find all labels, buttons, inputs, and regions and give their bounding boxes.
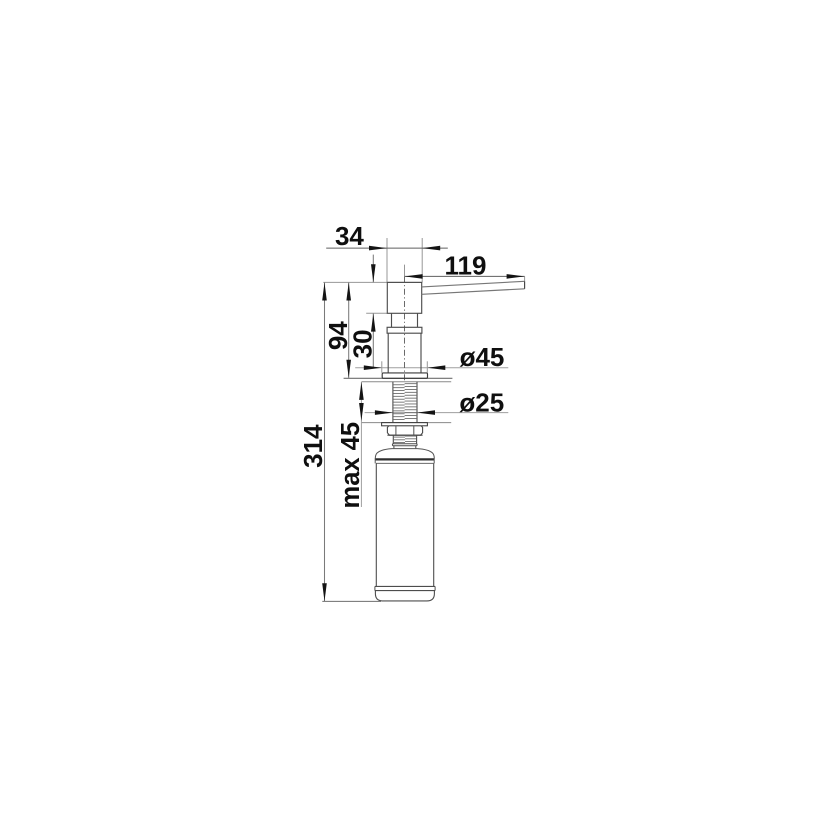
svg-text:30: 30 <box>347 329 377 358</box>
svg-text:max 45: max 45 <box>337 422 365 509</box>
svg-text:314: 314 <box>298 424 328 468</box>
svg-text:ø45: ø45 <box>460 342 505 372</box>
svg-text:ø25: ø25 <box>459 387 504 417</box>
svg-text:119: 119 <box>445 250 487 280</box>
svg-text:34: 34 <box>335 221 364 251</box>
